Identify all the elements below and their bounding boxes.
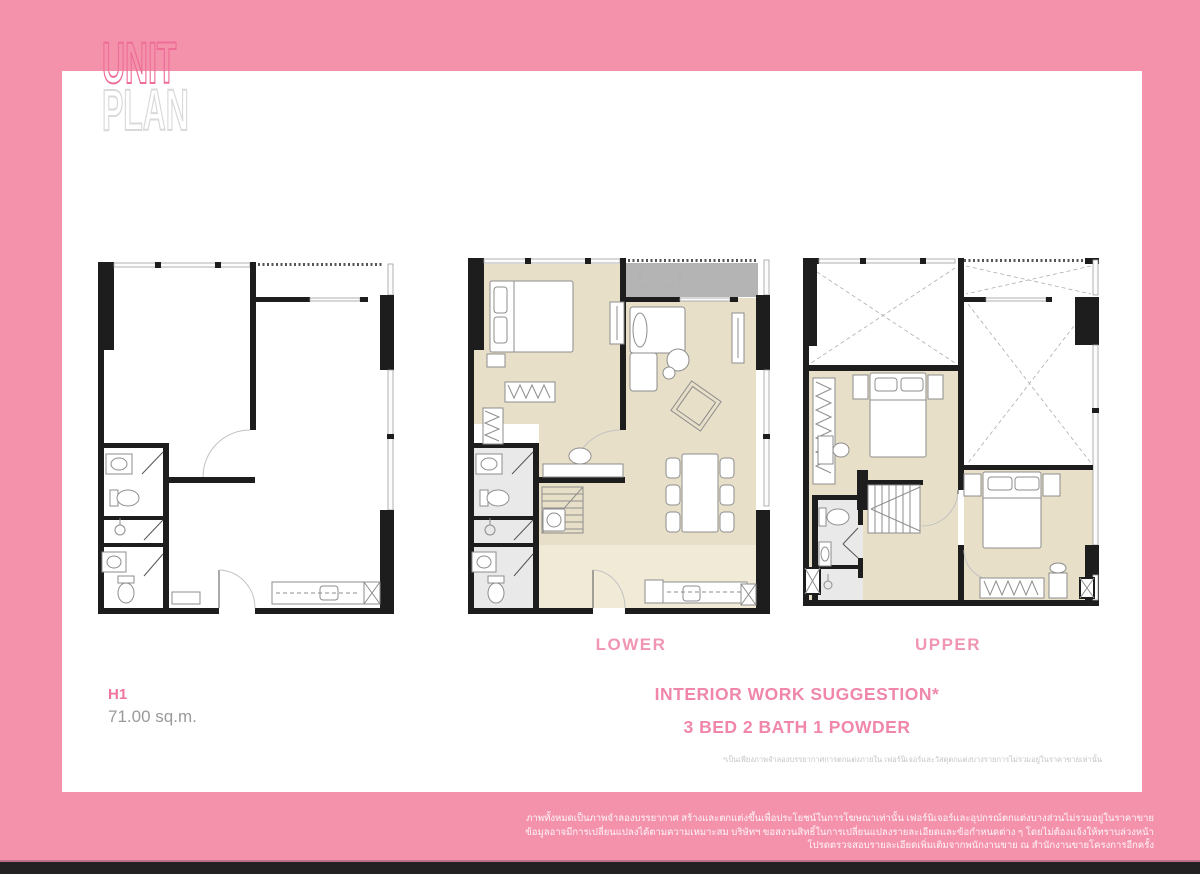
floor-label-lower: LOWER: [531, 635, 731, 655]
floorplan-lower: [468, 258, 770, 614]
sink-icon: [472, 552, 496, 572]
shaft-icon: [1080, 578, 1094, 598]
floorplan-shell: [98, 262, 394, 614]
bench-icon: [487, 354, 505, 367]
dining-set-icon: [666, 454, 734, 532]
floor-label-upper: UPPER: [848, 635, 1048, 655]
toilet-icon: [118, 576, 134, 583]
footer-disclaimer-line: โปรดตรวจสอบรายละเอียดเพิ่มเติมจากพนักงาน…: [525, 839, 1154, 853]
chair-icon: [833, 443, 849, 457]
interior-suggestion: INTERIOR WORK SUGGESTION* 3 BED 2 BATH 1…: [585, 684, 1009, 738]
page: LOWER UPPER H1 71.00 sq.m. INTERIOR WORK…: [62, 71, 1142, 792]
nightstand-icon: [964, 474, 981, 496]
kitchen-island-icon: [645, 580, 663, 603]
logo-line-plan: PLAN: [102, 87, 189, 134]
suggestion-line-2: 3 BED 2 BATH 1 POWDER: [585, 717, 1009, 738]
bottom-bar: [0, 860, 1200, 874]
footer-disclaimer-line: ภาพทั้งหมดเป็นภาพจำลองบรรยากาศ สร้างและต…: [525, 812, 1154, 826]
chair-icon: [569, 448, 591, 464]
chair-icon: [1050, 563, 1066, 573]
sink-icon: [102, 552, 126, 572]
unit-area: 71.00 sq.m.: [108, 707, 197, 727]
balcony: [626, 263, 758, 297]
desk-icon: [543, 464, 623, 477]
cabinet-icon: [172, 592, 200, 604]
toilet-icon: [488, 576, 504, 583]
shower-icon: [115, 525, 125, 535]
nightstand-icon: [853, 375, 868, 399]
suggestion-line-1: INTERIOR WORK SUGGESTION*: [585, 684, 1009, 705]
plan-disclaimer: *เป็นเพียงภาพจำลองบรรยากาศการตกแต่งภายใน…: [723, 754, 1102, 766]
desk-icon: [818, 436, 833, 464]
footer-disclaimer: ภาพทั้งหมดเป็นภาพจำลองบรรยากาศ สร้างและต…: [525, 812, 1154, 853]
fixtures: [102, 454, 380, 604]
nightstand-icon: [928, 375, 943, 399]
desk-icon: [1049, 573, 1067, 598]
pink-frame: { "logo": {"line1": "UNIT", "line2": "PL…: [0, 0, 1200, 874]
unit-plan-logo: UNIT PLAN: [102, 40, 260, 134]
nightstand-icon: [1043, 474, 1060, 496]
footer-disclaimer-line: ข้อมูลอาจมีการเปลี่ยนแปลงได้ตามความเหมาะ…: [525, 826, 1154, 840]
sink-icon: [106, 454, 132, 474]
unit-code: H1: [108, 686, 197, 703]
floorplan-upper: [803, 258, 1099, 614]
shaft-icon: [805, 568, 820, 594]
washer-icon: [543, 509, 565, 531]
toilet-icon: [819, 508, 826, 526]
unit-info: H1 71.00 sq.m.: [108, 686, 197, 727]
walls: [98, 262, 394, 614]
sink-icon: [476, 454, 502, 474]
